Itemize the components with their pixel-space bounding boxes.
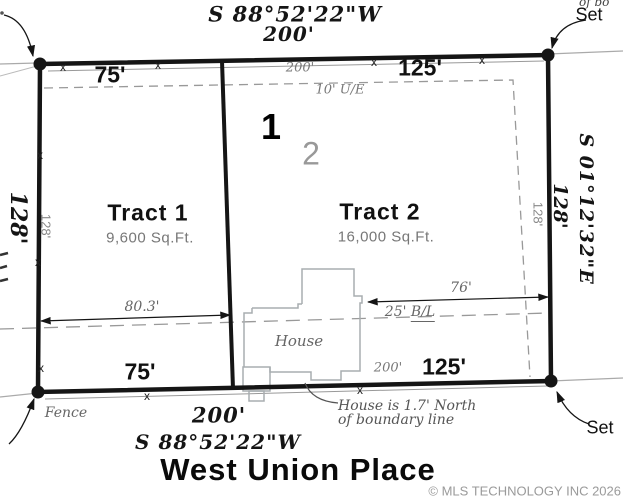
clipped-mark-top-left	[0, 11, 4, 15]
survey-plat: S 88°52'22"W 200' of bo Set 75' 200' 125…	[0, 0, 623, 503]
house-outline-left	[244, 308, 252, 367]
fence-label: Fence	[45, 405, 87, 421]
copyright-notice: © MLS TECHNOLOGY INC 2026	[428, 484, 621, 499]
utility-easement-label: 10' U/E	[315, 83, 364, 98]
dimension-arrow-80	[41, 315, 230, 321]
building-line-suffix: B/L	[411, 304, 435, 322]
fence-x-mark: x	[371, 55, 377, 69]
lot-number-1: 1	[261, 106, 281, 148]
north-overall-distance: 200'	[286, 61, 314, 76]
south-distance-label: 200'	[192, 403, 246, 428]
tract2-name: Tract 2	[339, 199, 420, 226]
set-pin-label-se: Set	[586, 418, 613, 439]
west-inner-depth-label: 128'	[39, 214, 54, 238]
south-tract2-width: 125'	[422, 354, 466, 381]
west-depth-label: 128'	[5, 192, 31, 245]
house-outline-main	[270, 269, 362, 380]
east-bearing-label: S 01°12'32"E	[575, 133, 597, 284]
fence-x-mark: x	[60, 60, 66, 74]
corner-monument-se	[545, 375, 558, 388]
house-label: House	[275, 332, 323, 350]
building-line-label: 25' B/L	[385, 304, 435, 320]
clipped-edge-marks	[0, 253, 8, 281]
tract1-name: Tract 1	[107, 200, 188, 227]
leader-sw	[9, 399, 34, 444]
row-line-bottom-right	[551, 378, 623, 381]
east-depth-label: 128'	[549, 183, 571, 228]
set-pin-label-ne: Set	[575, 5, 602, 26]
corner-monument-nw	[34, 58, 47, 71]
dimension-arrow-76	[368, 297, 548, 302]
north-tract1-width: 75'	[94, 62, 125, 89]
dimension-76-label: 76'	[450, 280, 472, 296]
tract-divider-line	[222, 61, 233, 389]
east-inner-depth-label: 128'	[531, 202, 546, 226]
leader-set-se	[557, 392, 589, 424]
house-note-line2: of boundary line	[338, 412, 454, 428]
row-line-top-right	[548, 51, 623, 54]
fence-x-mark: x	[155, 58, 161, 72]
south-bearing-label: S 88°52'22"W	[135, 430, 301, 454]
fence-x-mark: x	[35, 255, 41, 269]
fence-x-mark: x	[357, 383, 363, 397]
street-name: West Union Place	[160, 452, 436, 488]
fence-x-mark: x	[37, 148, 43, 162]
south-tract1-width: 75'	[124, 359, 155, 386]
corner-monument-ne	[542, 49, 555, 62]
south-overall-distance: 200'	[374, 361, 402, 376]
lot-number-2: 2	[302, 136, 320, 173]
fence-x-mark: x	[38, 361, 44, 375]
house-steps	[249, 391, 264, 401]
building-line-dashed	[0, 313, 549, 329]
north-distance-label: 200'	[263, 22, 315, 46]
corner-monument-sw	[32, 386, 45, 399]
fence-x-mark: x	[479, 53, 485, 67]
tract2-area: 16,000 Sq.Ft.	[338, 229, 435, 246]
dimension-80-label: 80.3'	[124, 299, 159, 315]
building-line-prefix: 25'	[385, 304, 407, 320]
leader-nw	[4, 15, 33, 56]
house-outline-step	[252, 304, 302, 308]
fence-x-mark: x	[144, 389, 150, 403]
north-tract2-width: 125'	[398, 55, 442, 82]
row-line-top-left-1	[0, 63, 37, 64]
row-line-top-left-2	[0, 66, 37, 76]
tract1-area: 9,600 Sq.Ft.	[106, 230, 194, 247]
